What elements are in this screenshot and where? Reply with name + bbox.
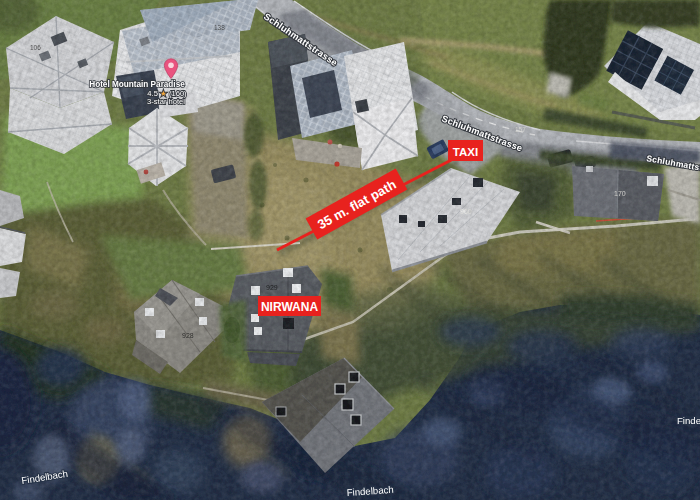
svg-text:Hotel Mountain Paradise: Hotel Mountain Paradise bbox=[89, 80, 185, 89]
svg-text:NIRWANA: NIRWANA bbox=[261, 300, 318, 314]
svg-text:TAXI: TAXI bbox=[453, 146, 478, 158]
svg-text:3-star hotel: 3-star hotel bbox=[147, 97, 185, 106]
svg-text:138: 138 bbox=[214, 24, 225, 31]
svg-text:106: 106 bbox=[30, 44, 41, 51]
svg-text:157: 157 bbox=[515, 126, 526, 133]
svg-text:Finde: Finde bbox=[677, 415, 700, 426]
